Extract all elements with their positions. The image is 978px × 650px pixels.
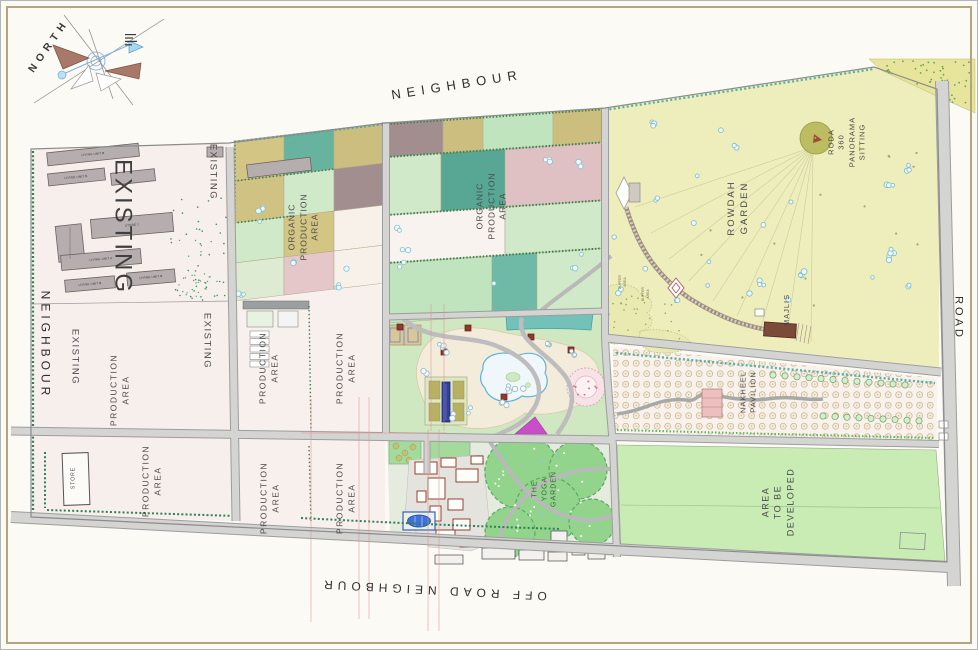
nakheel-pavilion-building <box>702 389 722 417</box>
site-plan-page: NEIGHBOUR NEIGHBOUR ROAD OFF ROAD NEIGHB… <box>0 0 978 650</box>
north-compass-icon <box>34 15 164 105</box>
organic-grid-2 <box>387 108 605 323</box>
swimming-pool <box>408 515 431 527</box>
store-building <box>62 453 90 506</box>
majlis-building <box>764 322 797 338</box>
site-plan-drawing <box>1 1 978 650</box>
